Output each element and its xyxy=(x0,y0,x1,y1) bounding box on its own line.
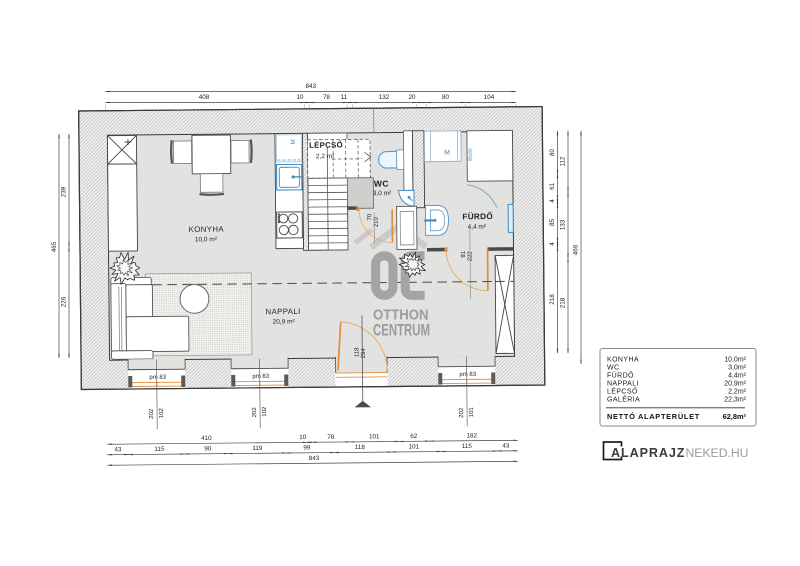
svg-text:4,4 m²: 4,4 m² xyxy=(468,224,487,231)
svg-text:pm 83: pm 83 xyxy=(459,372,476,378)
svg-text:10,0m²: 10,0m² xyxy=(724,357,746,364)
svg-text:102: 102 xyxy=(159,408,165,419)
svg-text:408: 408 xyxy=(199,94,210,101)
svg-text:202: 202 xyxy=(252,407,258,418)
svg-text:20,9m²: 20,9m² xyxy=(724,381,746,388)
svg-text:61: 61 xyxy=(549,183,556,191)
svg-text:10: 10 xyxy=(296,94,304,101)
svg-text:LÉPCSŐ: LÉPCSŐ xyxy=(607,387,638,396)
svg-text:101: 101 xyxy=(469,407,475,418)
svg-text:20,9 m²: 20,9 m² xyxy=(273,318,296,325)
svg-text:202: 202 xyxy=(459,407,465,418)
svg-text:115: 115 xyxy=(462,443,473,450)
svg-text:NAPPALI: NAPPALI xyxy=(607,381,639,388)
svg-text:78: 78 xyxy=(323,94,331,101)
svg-text:222: 222 xyxy=(468,251,474,262)
svg-text:M: M xyxy=(444,149,450,156)
svg-text:62,8m²: 62,8m² xyxy=(723,412,747,421)
svg-text:NETTÓ ALAPTERÜLET: NETTÓ ALAPTERÜLET xyxy=(607,412,700,421)
svg-text:843: 843 xyxy=(306,83,317,90)
svg-text:410: 410 xyxy=(201,435,212,442)
svg-text:81: 81 xyxy=(461,250,467,257)
svg-text:102: 102 xyxy=(262,406,268,417)
svg-text:210: 210 xyxy=(374,216,380,227)
svg-text:218: 218 xyxy=(560,297,567,308)
svg-text:101: 101 xyxy=(409,443,420,450)
svg-text:GALÉRIA: GALÉRIA xyxy=(607,395,640,404)
svg-text:KONYHA: KONYHA xyxy=(607,357,639,364)
svg-text:80: 80 xyxy=(549,149,556,157)
svg-text:119: 119 xyxy=(252,445,263,452)
svg-text:133: 133 xyxy=(560,219,567,230)
svg-text:465: 465 xyxy=(51,241,58,252)
svg-text:90: 90 xyxy=(204,445,212,452)
svg-text:NAPPALI: NAPPALI xyxy=(265,307,300,316)
svg-text:85: 85 xyxy=(549,219,556,227)
svg-text:62: 62 xyxy=(410,433,418,440)
svg-text:80x80: 80x80 xyxy=(468,148,473,161)
svg-text:22,3m²: 22,3m² xyxy=(724,397,746,404)
svg-text:43: 43 xyxy=(502,443,510,450)
svg-text:4: 4 xyxy=(549,199,556,203)
svg-text:43: 43 xyxy=(114,446,122,453)
svg-text:WC: WC xyxy=(607,365,619,372)
svg-text:FÜRDŐ: FÜRDŐ xyxy=(462,210,493,221)
svg-text:KONYHA: KONYHA xyxy=(189,225,225,234)
svg-text:2,2m²: 2,2m² xyxy=(728,389,747,396)
svg-text:pm 83: pm 83 xyxy=(252,374,269,380)
svg-text:70: 70 xyxy=(367,213,373,220)
svg-text:218: 218 xyxy=(549,294,556,305)
svg-text:4,4m²: 4,4m² xyxy=(728,373,747,380)
svg-text:112: 112 xyxy=(560,156,567,167)
svg-text:118: 118 xyxy=(354,347,360,357)
svg-text:4: 4 xyxy=(549,242,556,246)
svg-text:WC: WC xyxy=(374,179,389,189)
svg-text:FÜRDŐ: FÜRDŐ xyxy=(607,371,634,380)
svg-text:3,0 m²: 3,0 m² xyxy=(373,190,392,197)
svg-text:78: 78 xyxy=(327,434,335,441)
svg-text:466: 466 xyxy=(573,244,580,255)
svg-text:115: 115 xyxy=(154,446,165,453)
svg-text:LÉPCSŐ: LÉPCSŐ xyxy=(309,140,343,149)
svg-text:182: 182 xyxy=(467,432,478,439)
svg-text:226: 226 xyxy=(61,296,68,307)
svg-text:843: 843 xyxy=(309,455,320,462)
svg-text:3,0m²: 3,0m² xyxy=(728,365,747,372)
svg-text:101: 101 xyxy=(369,433,380,440)
svg-text:10,0 m²: 10,0 m² xyxy=(195,236,218,243)
svg-text:104: 104 xyxy=(484,94,495,101)
svg-text:pm 83: pm 83 xyxy=(149,375,166,381)
svg-text:10: 10 xyxy=(299,434,307,441)
svg-text:20: 20 xyxy=(408,94,416,101)
svg-text:2,2 m²: 2,2 m² xyxy=(316,153,335,160)
svg-text:80: 80 xyxy=(442,94,450,101)
svg-text:NEKED.HU: NEKED.HU xyxy=(686,446,749,460)
svg-text:118: 118 xyxy=(355,444,366,451)
svg-text:132: 132 xyxy=(379,94,390,101)
svg-text:99: 99 xyxy=(303,444,311,451)
svg-text:CENTRUM: CENTRUM xyxy=(373,322,430,340)
svg-text:239: 239 xyxy=(61,186,68,197)
svg-text:11: 11 xyxy=(341,94,348,101)
svg-text:202: 202 xyxy=(149,408,155,419)
svg-text:M: M xyxy=(290,139,297,144)
svg-text:ALAPRAJZ: ALAPRAJZ xyxy=(611,446,685,460)
